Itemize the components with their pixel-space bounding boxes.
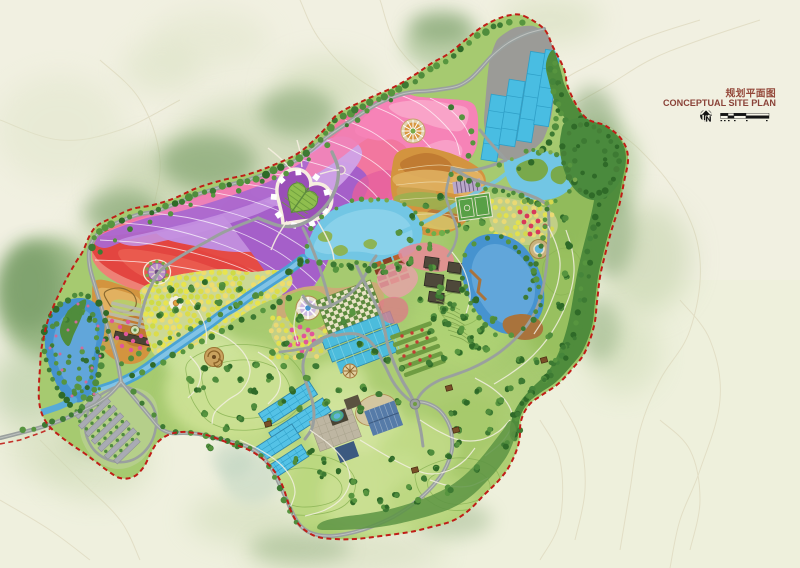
svg-text:CONCEPTUAL SITE PLAN: CONCEPTUAL SITE PLAN [663, 98, 776, 108]
